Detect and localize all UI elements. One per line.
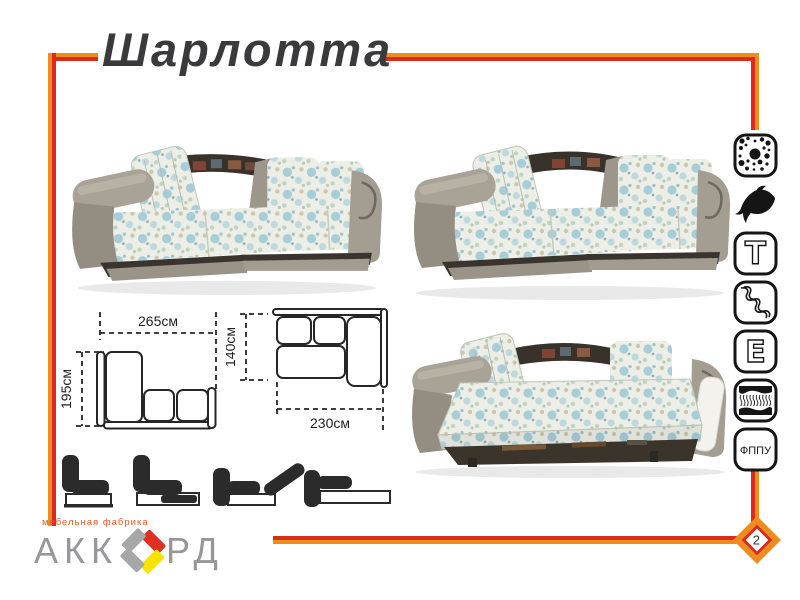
- logo-wordmark-left: АКК: [34, 530, 118, 572]
- spring-snake-icon: [733, 280, 778, 325]
- feature-icon-column: Т Е ФППУ: [733, 133, 779, 472]
- sleeping-area-shapes: [273, 309, 387, 387]
- frame-right-line-top: [751, 57, 759, 130]
- frame-left-line: [48, 53, 56, 526]
- logo-wordmark-right: РД: [166, 530, 224, 572]
- page-title: Шарлотта: [102, 22, 393, 77]
- e-symbol-label: Е: [745, 335, 766, 370]
- transform-stage-1-icon: [62, 455, 113, 508]
- sofa-photo-folded-right: [402, 118, 732, 303]
- transform-stage-3-icon: [213, 461, 307, 506]
- footprint-shapes: [97, 352, 216, 429]
- e-symbol-icon: Е: [733, 329, 778, 374]
- t-symbol-label: Т: [745, 236, 766, 272]
- sofa-photo-unfolded-bed: [402, 320, 732, 482]
- dolphin-mechanism-icon: [733, 182, 778, 227]
- page-number-inner: 2: [741, 524, 772, 555]
- dimension-label-depth-folded: 195см: [58, 369, 74, 409]
- dimension-label-depth-unfolded: 140см: [226, 327, 238, 367]
- frame-top-line-right: [380, 53, 759, 61]
- dimension-label-width-folded: 265см: [138, 313, 178, 329]
- sofa-photo-folded-left: [64, 122, 386, 298]
- diagram-sleeping-area: 140см 230см: [226, 296, 388, 442]
- filling-dots-icon: [733, 133, 778, 178]
- page-number-badge: 2: [733, 516, 781, 564]
- fppu-label: ФППУ: [740, 445, 772, 457]
- page-number: 2: [753, 532, 760, 547]
- dimension-label-width-unfolded: 230см: [310, 415, 350, 431]
- transform-stage-4-icon: [304, 470, 390, 507]
- transformation-stages: [57, 447, 393, 509]
- mattress-layers-icon: [733, 378, 778, 423]
- diagram-folded-footprint: 265см 195см: [58, 296, 220, 442]
- logo-wordmark: АКК РД: [34, 524, 224, 578]
- t-symbol-icon: Т: [733, 231, 778, 276]
- logo-pinwheel-icon: [116, 524, 170, 578]
- frame-bottom-line: [273, 536, 742, 544]
- fppu-icon: ФППУ: [733, 427, 778, 472]
- brand-logo: мебельная фабрика АКК РД: [34, 512, 284, 582]
- transform-stage-2-icon: [133, 455, 199, 505]
